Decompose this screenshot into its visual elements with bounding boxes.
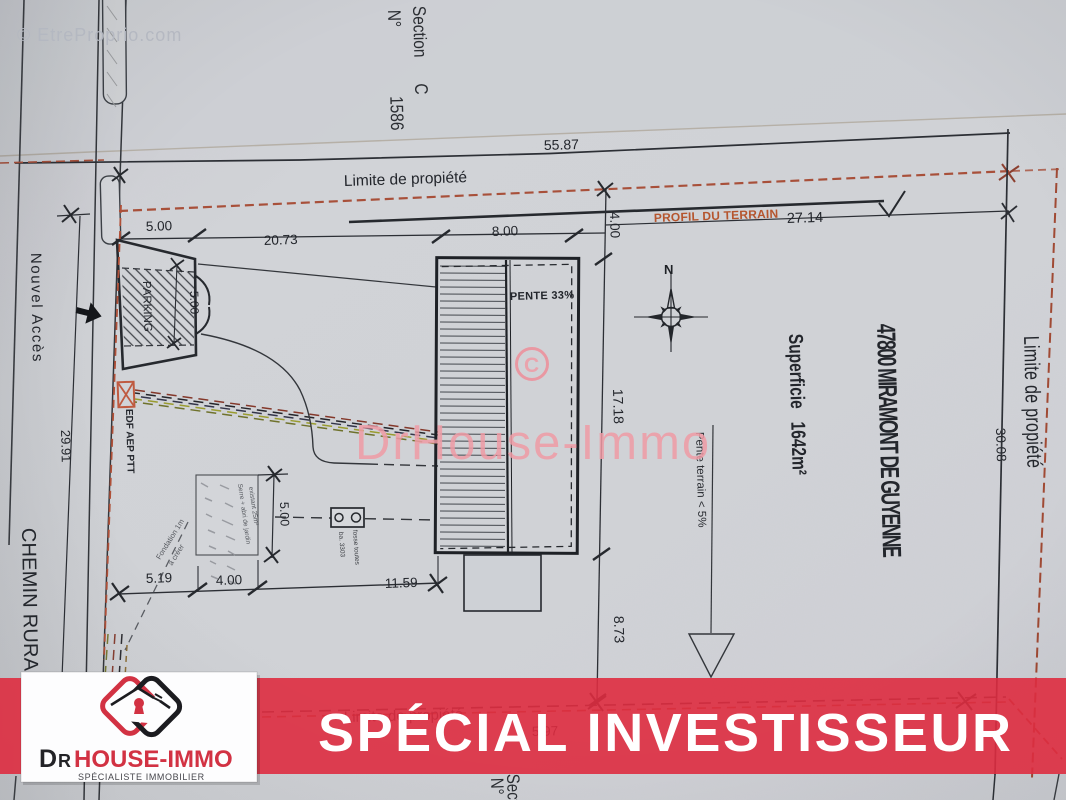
svg-text:HOUSE-IMMO: HOUSE-IMMO: [74, 746, 233, 773]
svg-text:D: D: [39, 745, 57, 773]
svg-text:SPÉCIALISTE IMMOBILIER: SPÉCIALISTE IMMOBILIER: [78, 772, 205, 782]
svg-text:SPÉCIAL INVESTISSEUR: SPÉCIAL INVESTISSEUR: [318, 703, 1013, 763]
svg-text:DrHouse-Immo: DrHouse-Immo: [355, 416, 711, 470]
svg-text:R: R: [58, 751, 71, 771]
svg-text:C: C: [524, 354, 539, 377]
svg-text:© EtreProprio.com: © EtreProprio.com: [17, 25, 182, 45]
